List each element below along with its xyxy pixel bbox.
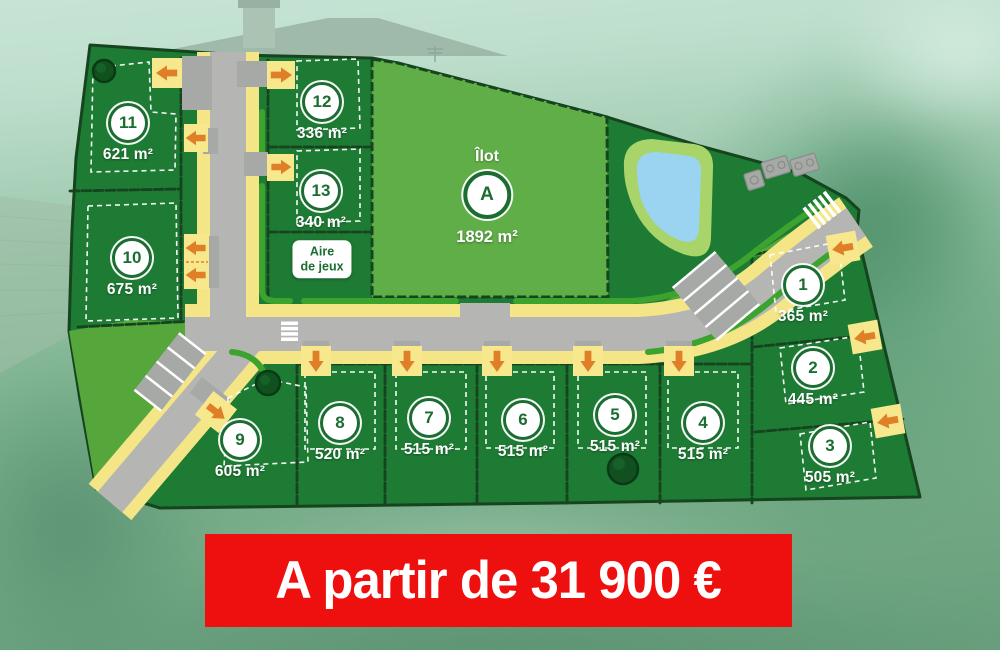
price-banner: A partir de 31 900 €: [205, 534, 792, 627]
arrow-icon: [184, 262, 209, 289]
tree-icon: [608, 454, 638, 484]
price-banner-text: A partir de 31 900 €: [276, 550, 722, 611]
playground-sign: Aire de jeux: [292, 240, 351, 278]
arrow-icon: [664, 346, 694, 376]
arrow-icon: [871, 404, 906, 439]
lotissement-plan-image: 11 621 m² 12 336 m² 13 340 m² 10 675 m² …: [0, 0, 1000, 650]
arrow-icon: [267, 61, 295, 89]
tree-icon: [93, 60, 115, 82]
playground-sign-line2: de jeux: [300, 259, 343, 274]
arrow-icon: [392, 346, 422, 376]
arrow-icon: [848, 320, 883, 355]
background-roof-left: [0, 196, 74, 373]
playground-sign-line1: Aire: [300, 244, 343, 259]
arrow-icon: [482, 346, 512, 376]
tree-icon: [256, 371, 280, 395]
ilot-a-area: [372, 59, 608, 297]
arrow-icon: [826, 231, 861, 266]
arrow-icon: [573, 346, 603, 376]
arrow-icon: [184, 124, 208, 152]
arrow-icon: [301, 346, 331, 376]
arrow-icon: [184, 234, 209, 262]
arrow-icon: [152, 58, 182, 88]
arrow-icon: [267, 154, 294, 181]
